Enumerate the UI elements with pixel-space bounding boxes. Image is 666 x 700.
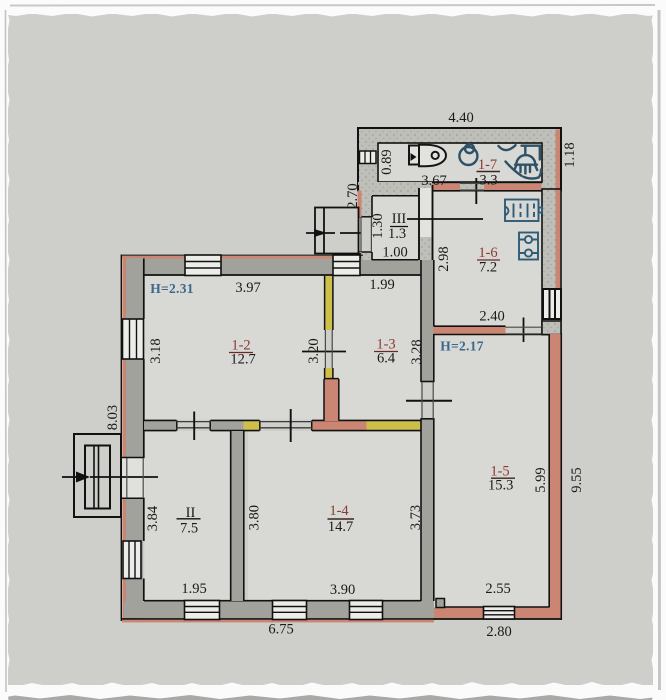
svg-text:3.67: 3.67	[421, 173, 446, 189]
svg-text:1-7: 1-7	[478, 157, 497, 173]
svg-text:0.89: 0.89	[379, 149, 395, 174]
svg-text:7.5: 7.5	[180, 521, 198, 537]
svg-text:2.55: 2.55	[485, 581, 510, 597]
svg-text:14.7: 14.7	[328, 519, 353, 535]
svg-text:2.40: 2.40	[479, 309, 504, 325]
svg-text:7.2: 7.2	[479, 260, 497, 276]
svg-text:1.18: 1.18	[562, 142, 578, 167]
svg-text:3.84: 3.84	[145, 505, 161, 531]
svg-text:6.4: 6.4	[377, 351, 396, 367]
svg-text:4.40: 4.40	[448, 110, 473, 126]
svg-text:2.98: 2.98	[436, 246, 452, 271]
svg-text:H=2.31: H=2.31	[150, 281, 194, 296]
svg-text:8.03: 8.03	[105, 405, 121, 430]
svg-text:3.97: 3.97	[235, 280, 260, 296]
svg-text:3.90: 3.90	[330, 582, 355, 598]
svg-text:5.99: 5.99	[533, 467, 549, 492]
svg-text:12.7: 12.7	[230, 352, 255, 368]
svg-text:1.3: 1.3	[388, 226, 406, 242]
svg-text:15.3: 15.3	[488, 478, 513, 494]
svg-text:3.3: 3.3	[479, 173, 497, 189]
svg-text:2.80: 2.80	[486, 624, 511, 640]
svg-text:3.80: 3.80	[247, 505, 263, 530]
svg-text:H=2.17: H=2.17	[440, 339, 484, 354]
svg-text:6.75: 6.75	[268, 622, 293, 638]
svg-text:3.73: 3.73	[408, 505, 424, 530]
svg-text:3.20: 3.20	[306, 338, 322, 363]
svg-text:1.95: 1.95	[181, 581, 206, 597]
svg-text:III: III	[392, 211, 407, 227]
svg-text:9.55: 9.55	[569, 467, 585, 492]
svg-text:3.28: 3.28	[409, 339, 425, 364]
svg-text:1-4: 1-4	[329, 503, 349, 519]
svg-text:1.00: 1.00	[382, 245, 407, 261]
svg-text:3.18: 3.18	[148, 338, 164, 363]
svg-text:2.70: 2.70	[345, 183, 361, 208]
svg-text:1.99: 1.99	[369, 277, 394, 293]
svg-text:1.30: 1.30	[370, 213, 386, 238]
